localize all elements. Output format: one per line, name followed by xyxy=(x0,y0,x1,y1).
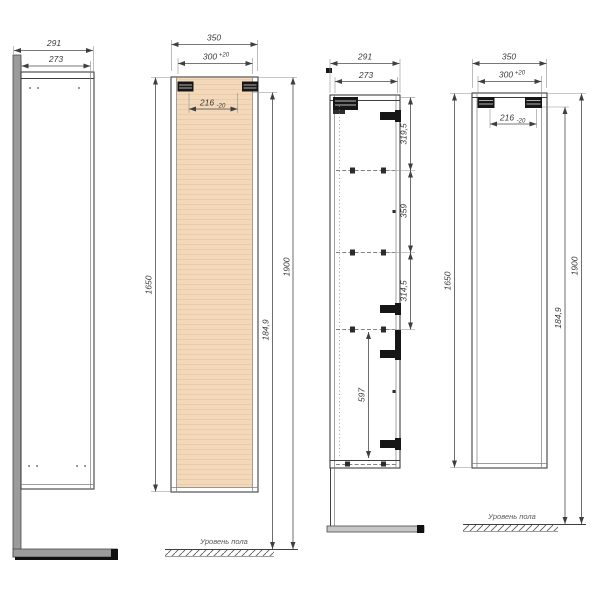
dim-label-v4-height: 1650 xyxy=(443,271,453,290)
dim-label-v4-total: 350 xyxy=(502,52,516,62)
dim-label-v3-seg4: 597 xyxy=(357,388,367,402)
floor-line-right: Уровень пола xyxy=(463,512,586,532)
floor-label-left: Уровень пола xyxy=(199,537,248,546)
floor-hatch-2 xyxy=(463,525,558,531)
front-panel-wood xyxy=(177,78,253,488)
dim-label-v2-height: 1650 xyxy=(144,275,154,294)
view-front-outline: 350 300 +20 216 -20 1650 184,9 xyxy=(443,52,587,532)
dim-label-v4-open: 300 xyxy=(499,70,513,80)
door-panel-edge xyxy=(13,55,21,557)
dim-label-v3-seg1: 319,5 xyxy=(399,123,409,145)
foot-shadow xyxy=(15,557,118,560)
view-side-left: 291 273 xyxy=(13,38,118,560)
dim-v1-body: 273 xyxy=(22,54,91,71)
dim-v4-height: 1650 xyxy=(443,94,472,468)
foot-end-cap-section xyxy=(417,525,424,533)
cabinet-drawing: 291 273 350 xyxy=(0,0,600,600)
dim-v2-height: 1650 xyxy=(144,78,171,492)
view-front-colored: 350 300 +20 216 -20 1650 184,9 xyxy=(144,33,299,557)
carcass-side xyxy=(21,72,94,489)
dim-label-v3-body: 273 xyxy=(358,70,373,80)
dim-v2-open: 300 +20 xyxy=(178,52,253,75)
dim-label-v3-seg3: 314,5 xyxy=(399,280,409,302)
dim-label-v1-body: 273 xyxy=(48,54,63,64)
floor-hatch xyxy=(165,550,274,556)
dim-label-v4-open-tol: +20 xyxy=(515,71,526,77)
floor-label-right: Уровень пола xyxy=(487,512,536,521)
dim-label-v3-total: 291 xyxy=(357,52,372,62)
dim-v2-overall: 1900 xyxy=(258,78,297,550)
dim-label-v4-overall: 1900 xyxy=(570,256,580,275)
view-section: 291 273 319,5 359 314,5 597 xyxy=(326,52,424,534)
dim-label-v2-open-tol: +20 xyxy=(219,53,230,59)
dim-label-v2-inner-tol: -20 xyxy=(217,104,226,110)
technical-drawing-canvas: 291 273 350 xyxy=(0,0,600,600)
floor-line-left: Уровень пола xyxy=(165,537,298,557)
foot-bar xyxy=(13,549,117,557)
dim-label-v2-open: 300 xyxy=(203,52,217,62)
dim-label-v4-inner: 216 xyxy=(499,113,514,123)
wall-bracket xyxy=(326,68,332,73)
hanging-bracket-right xyxy=(242,82,258,92)
hanging-bracket-right-2 xyxy=(525,97,542,108)
hanging-bracket-left-2 xyxy=(478,97,495,108)
dim-label-v1-total: 291 xyxy=(46,38,61,48)
dim-v3-body: 273 xyxy=(335,70,398,93)
front-outline-panel xyxy=(472,93,547,468)
dim-label-v2-hook: 184,9 xyxy=(261,319,271,341)
dim-label-v2-overall: 1900 xyxy=(282,257,292,276)
section-outline xyxy=(330,95,400,468)
dim-label-v4-inner-tol: -20 xyxy=(517,119,526,125)
dim-label-v4-hook: 184,9 xyxy=(553,307,563,329)
dim-label-v3-seg2: 359 xyxy=(399,204,409,218)
dim-label-v2-inner: 216 xyxy=(199,98,214,108)
hanging-bracket-left xyxy=(178,82,194,92)
dim-v4-open: 300 +20 xyxy=(478,70,542,93)
foot-bar-section xyxy=(327,526,424,532)
dim-label-v2-total: 350 xyxy=(207,33,221,43)
foot-end-cap xyxy=(111,549,118,560)
